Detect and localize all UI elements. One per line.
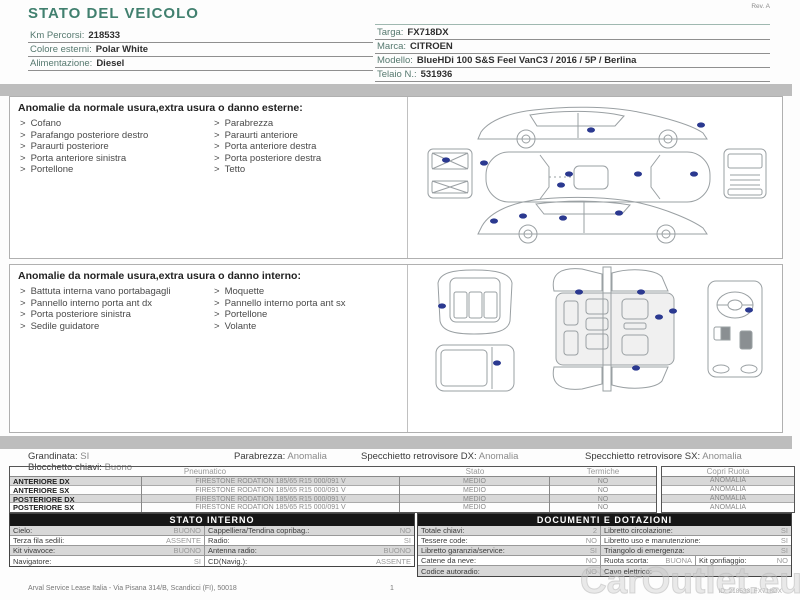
status-label: Specchietto retrovisore DX:: [361, 451, 477, 462]
kv-cell: Cappelliera/Tendina copribag.:NO: [205, 526, 414, 535]
kv-value: SI: [781, 526, 788, 535]
table-row: ANTERIORE SX FIRESTONE RODATION 185/65 R…: [10, 486, 656, 495]
field-value: FX718DX: [407, 27, 448, 38]
list-bullet: >: [20, 130, 26, 142]
list-bullet: >: [214, 321, 220, 333]
table-title: STATO INTERNO: [10, 514, 414, 526]
list-item: >Pannello interno porta ant dx: [18, 298, 208, 310]
tyre-table-header: Pneumatico Stato Termiche: [10, 467, 656, 477]
anomaly-label: Cofano: [31, 118, 62, 130]
revision-label: Rev. A: [751, 3, 770, 10]
table-row: ANOMALIA: [662, 486, 794, 495]
kv-value: ASSENTE: [376, 557, 411, 566]
kv-cell: Tessere code:NO: [418, 536, 601, 545]
kv-label: Navigatore:: [13, 557, 51, 566]
car-front-view: [724, 149, 766, 198]
footer-page-number: 1: [390, 585, 394, 592]
anomaly-label: Porta anteriore sinistra: [31, 153, 127, 165]
field-modello: Modello: BlueHDi 100 S&S Feel VanC3 / 20…: [375, 54, 770, 68]
interior-anomalies-section: Anomalie da normale usura,extra usura o …: [9, 264, 783, 433]
tyre-position: POSTERIORE DX: [10, 495, 142, 504]
list-item: >Pannello interno porta ant sx: [212, 298, 399, 310]
anomaly-label: Paraurti posteriore: [31, 141, 109, 153]
anomaly-label: Parafango posteriore destro: [31, 130, 149, 142]
kv-label: Antenna radio:: [208, 546, 257, 555]
exterior-col2: >Parabrezza >Paraurti anteriore >Porta a…: [212, 118, 399, 176]
list-bullet: >: [20, 286, 26, 298]
tyre-description: FIRESTONE RODATION 185/65 R15 000/091 V: [142, 486, 400, 495]
kv-label: Triangolo di emergenza:: [604, 546, 685, 555]
tyre-description: FIRESTONE RODATION 185/65 R15 000/091 V: [142, 477, 400, 486]
kv-label: Catene da neve:: [421, 556, 476, 565]
damage-marker: [690, 171, 698, 176]
hatch-interior-view: [436, 345, 514, 391]
field-value: 531936: [421, 69, 453, 80]
interior-anomalies-list: Anomalie da normale usura,extra usura o …: [10, 265, 408, 432]
tyre-termiche: NO: [550, 477, 656, 486]
table-row: Libretto garanzia/service:SI Triangolo d…: [418, 546, 791, 556]
field-value: Polar White: [96, 44, 148, 55]
anomaly-label: Moquette: [225, 286, 265, 298]
kv-label: Libretto circolazione:: [604, 526, 673, 535]
list-bullet: >: [214, 298, 220, 310]
list-bullet: >: [214, 118, 220, 130]
field-value: 218533: [88, 30, 120, 41]
vehicle-report-page: STATO DEL VEICOLO Rev. A Km Percorsi: 21…: [0, 0, 800, 600]
kv-cell: Terza fila sedili:ASSENTE: [10, 536, 205, 545]
field-telaio: Telaio N.: 531936: [375, 68, 770, 82]
page-title: STATO DEL VEICOLO: [28, 5, 199, 22]
kv-label: Totale chiavi:: [421, 526, 464, 535]
list-bullet: >: [214, 286, 220, 298]
kv-cell: Libretto circolazione:SI: [601, 526, 791, 535]
exterior-col1: >Cofano >Parafango posteriore destro >Pa…: [18, 118, 208, 176]
tyre-stato: MEDIO: [400, 477, 550, 486]
list-item: >Parabrezza: [212, 118, 399, 130]
kv-value: BUONO: [173, 526, 201, 535]
kv-cell: Kit vivavoce:BUONO: [10, 546, 205, 555]
list-item: >Porta anteriore sinistra: [18, 153, 208, 165]
anomaly-label: Portellone: [225, 309, 268, 321]
car-interior-views-diagram: [408, 265, 782, 416]
tyre-termiche: NO: [550, 486, 656, 495]
table-row: ANOMALIA: [662, 503, 794, 512]
kv-value: 2: [593, 526, 597, 535]
list-bullet: >: [20, 153, 26, 165]
anomaly-label: Portellone: [31, 164, 74, 176]
anomaly-label: Tetto: [225, 164, 246, 176]
column-header: Termiche: [550, 467, 656, 476]
tyre-position: POSTERIORE SX: [10, 503, 142, 512]
damage-marker: [637, 289, 645, 294]
dashboard-view: [708, 281, 762, 377]
list-item: >Porta posteriore sinistra: [18, 309, 208, 321]
list-item: >Paraurti posteriore: [18, 141, 208, 153]
list-item: >Paraurti anteriore: [212, 130, 399, 142]
interior-damage-diagram: [408, 265, 782, 432]
table-row: Tessere code:NO Libretto uso e manutenzi…: [418, 536, 791, 546]
damage-marker: [745, 307, 753, 312]
separator-bar: [0, 436, 792, 449]
footer-company-address: Arval Service Lease Italia - Via Pisana …: [28, 585, 237, 592]
list-item: >Battuta interna vano portabagagli: [18, 286, 208, 298]
car-top-view: [486, 152, 710, 202]
kv-label: Libretto garanzia/service:: [421, 546, 505, 555]
anomaly-label: Pannello interno porta ant sx: [225, 298, 346, 310]
anomaly-label: Porta anteriore destra: [225, 141, 317, 153]
list-item: >Portellone: [212, 309, 399, 321]
kv-label: Codice autoradio:: [421, 567, 480, 576]
anomaly-label: Volante: [225, 321, 257, 333]
list-item: >Porta posteriore destra: [212, 153, 399, 165]
field-label: Telaio N.:: [377, 69, 417, 80]
field-label: Modello:: [377, 55, 413, 66]
list-bullet: >: [20, 118, 26, 130]
damage-marker: [669, 308, 677, 313]
kv-value: SI: [590, 546, 597, 555]
tyre-position: ANTERIORE DX: [10, 477, 142, 486]
separator-bar: [0, 84, 792, 96]
tyre-stato: MEDIO: [400, 495, 550, 504]
interior-anomalies-columns: >Battuta interna vano portabagagli >Pann…: [18, 286, 399, 332]
table-row: Kit vivavoce:BUONO Antenna radio:BUONO: [10, 546, 414, 556]
anomaly-label: Porta posteriore sinistra: [31, 309, 131, 321]
anomaly-label: Porta posteriore destra: [225, 153, 322, 165]
status-value: SI: [80, 451, 89, 462]
car-exterior-views-diagram: [408, 97, 782, 258]
field-targa: Targa: FX718DX: [375, 26, 770, 40]
car-rear-view: [428, 149, 472, 198]
list-bullet: >: [20, 309, 26, 321]
kv-label: Kit vivavoce:: [13, 546, 55, 555]
exterior-anomalies-columns: >Cofano >Parafango posteriore destro >Pa…: [18, 118, 399, 176]
exterior-damage-diagram: [408, 97, 782, 258]
car-side-view-right: [478, 197, 707, 243]
field-value: Diesel: [96, 58, 124, 69]
field-value: CITROEN: [410, 41, 453, 52]
status-label: Grandinata:: [28, 451, 78, 462]
tyre-table: Pneumatico Stato Termiche ANTERIORE DX F…: [9, 466, 657, 513]
damage-marker: [565, 171, 573, 176]
kv-value: NO: [400, 526, 411, 535]
list-item: >Sedile guidatore: [18, 321, 208, 333]
stato-interno-table: STATO INTERNO Cielo:BUONO Cappelliera/Te…: [9, 513, 415, 567]
anomaly-label: Battuta interna vano portabagagli: [31, 286, 171, 298]
anomaly-label: Sedile guidatore: [31, 321, 100, 333]
status-label: Parabrezza:: [234, 451, 285, 462]
kv-cell: Antenna radio:BUONO: [205, 546, 414, 555]
kv-label: Cielo:: [13, 526, 32, 535]
table-row: ANOMALIA: [662, 495, 794, 504]
table-row: Totale chiavi:2 Libretto circolazione:SI: [418, 526, 791, 536]
kv-label: Cappelliera/Tendina copribag.:: [208, 526, 309, 535]
field-colore: Colore esterni: Polar White: [28, 43, 373, 57]
damage-marker: [587, 127, 595, 132]
kv-cell: Cielo:BUONO: [10, 526, 205, 535]
status-specchietto-dx: Specchietto retrovisore DX: Anomalia: [361, 451, 518, 462]
damage-marker: [519, 213, 527, 218]
list-bullet: >: [214, 141, 220, 153]
exterior-anomalies-title: Anomalie da normale usura,extra usura o …: [18, 102, 399, 114]
status-specchietto-sx: Specchietto retrovisore SX: Anomalia: [585, 451, 742, 462]
kv-label: Terza fila sedili:: [13, 536, 64, 545]
tyre-stato: MEDIO: [400, 503, 550, 512]
kv-value: BUONO: [383, 546, 411, 555]
field-label: Colore esterni:: [30, 44, 92, 55]
kv-value: SI: [781, 536, 788, 545]
list-item: >Moquette: [212, 286, 399, 298]
exterior-anomalies-list: Anomalie da normale usura,extra usura o …: [10, 97, 408, 258]
kv-cell: Totale chiavi:2: [418, 526, 601, 535]
list-item: >Portellone: [18, 164, 208, 176]
kv-cell: Catene da neve:NO: [418, 556, 601, 565]
list-item: >Parafango posteriore destro: [18, 130, 208, 142]
status-label: Specchietto retrovisore SX:: [585, 451, 700, 462]
column-header: Stato: [400, 467, 550, 476]
anomaly-label: Paraurti anteriore: [225, 130, 298, 142]
kv-value: SI: [781, 546, 788, 555]
exterior-anomalies-section: Anomalie da normale usura,extra usura o …: [9, 96, 783, 259]
table-row: POSTERIORE SX FIRESTONE RODATION 185/65 …: [10, 503, 656, 512]
kv-label: CD(Navig.):: [208, 557, 247, 566]
damage-marker: [490, 218, 498, 223]
caroutlet-watermark: CarOutlet.eu: [580, 560, 800, 600]
kv-cell: Libretto uso e manutenzione:SI: [601, 536, 791, 545]
field-label: Alimentazione:: [30, 58, 92, 69]
field-label: Targa:: [377, 27, 403, 38]
status-parabrezza: Parabrezza: Anomalia: [234, 451, 327, 462]
kv-cell: Radio:SI: [205, 536, 414, 545]
interior-col2: >Moquette >Pannello interno porta ant sx…: [212, 286, 399, 332]
damage-marker: [442, 157, 450, 162]
kv-cell: Triangolo di emergenza:SI: [601, 546, 791, 555]
damage-marker: [559, 215, 567, 220]
interior-anomalies-title: Anomalie da normale usura,extra usura o …: [18, 270, 399, 282]
table-row: ANTERIORE DX FIRESTONE RODATION 185/65 R…: [10, 477, 656, 486]
damage-marker: [655, 314, 663, 319]
list-bullet: >: [20, 141, 26, 153]
interior-col1: >Battuta interna vano portabagagli >Pann…: [18, 286, 208, 332]
damage-marker: [634, 171, 642, 176]
field-km: Km Percorsi: 218533: [28, 29, 373, 43]
kv-cell: Navigatore:SI: [10, 556, 205, 566]
table-row: Navigatore:SI CD(Navig.):ASSENTE: [10, 556, 414, 566]
list-bullet: >: [214, 309, 220, 321]
tyre-position: ANTERIORE SX: [10, 486, 142, 495]
table-row: Terza fila sedili:ASSENTE Radio:SI: [10, 536, 414, 546]
kv-label: Tessere code:: [421, 536, 468, 545]
table-row: Cielo:BUONO Cappelliera/Tendina copribag…: [10, 526, 414, 536]
list-item: >Tetto: [212, 164, 399, 176]
status-grandinata: Grandinata: SI: [28, 451, 89, 462]
field-marca: Marca: CITROEN: [375, 40, 770, 54]
kv-cell: Libretto garanzia/service:SI: [418, 546, 601, 555]
tyre-description: FIRESTONE RODATION 185/65 R15 000/091 V: [142, 503, 400, 512]
column-header: Copri Ruota: [662, 467, 794, 477]
kv-value: NO: [586, 536, 597, 545]
field-alimentazione: Alimentazione: Diesel: [28, 57, 373, 71]
status-value: Anomalia: [479, 451, 519, 462]
header-left-fields: Km Percorsi: 218533 Colore esterni: Pola…: [28, 29, 373, 71]
damage-marker: [438, 303, 446, 308]
table-row: ANOMALIA: [662, 477, 794, 486]
copri-ruota-table: Copri Ruota ANOMALIA ANOMALIA ANOMALIA A…: [661, 466, 795, 513]
kv-cell: CD(Navig.):ASSENTE: [205, 556, 414, 566]
kv-cell: Codice autoradio:NO: [418, 566, 601, 576]
damage-marker: [615, 210, 623, 215]
list-bullet: >: [214, 164, 220, 176]
table-title: DOCUMENTI E DOTAZIONI: [418, 514, 791, 526]
list-item: >Porta anteriore destra: [212, 141, 399, 153]
damage-marker: [697, 122, 705, 127]
column-header: Pneumatico: [10, 467, 400, 476]
kv-label: Radio:: [208, 536, 230, 545]
kv-value: ASSENTE: [166, 536, 201, 545]
kv-value: SI: [404, 536, 411, 545]
list-bullet: >: [20, 321, 26, 333]
anomaly-label: Parabrezza: [225, 118, 274, 130]
field-label: Marca:: [377, 41, 406, 52]
list-item: >Cofano: [18, 118, 208, 130]
tyre-stato: MEDIO: [400, 486, 550, 495]
damage-marker: [632, 365, 640, 370]
tyre-description: FIRESTONE RODATION 185/65 R15 000/091 V: [142, 495, 400, 504]
tyre-termiche: NO: [550, 495, 656, 504]
tyre-termiche: NO: [550, 503, 656, 512]
kv-value: BUONO: [173, 546, 201, 555]
cabin-spread-view: [553, 267, 674, 391]
list-item: >Volante: [212, 321, 399, 333]
field-value: BlueHDi 100 S&S Feel VanC3 / 2016 / 5P /…: [417, 55, 636, 66]
list-bullet: >: [214, 130, 220, 142]
kv-value: SI: [194, 557, 201, 566]
damage-marker: [575, 289, 583, 294]
status-value: Anomalia: [702, 451, 742, 462]
anomaly-label: Pannello interno porta ant dx: [31, 298, 152, 310]
trunk-interior-view: [438, 270, 512, 334]
list-bullet: >: [20, 298, 26, 310]
damage-marker: [480, 160, 488, 165]
status-value: Anomalia: [287, 451, 327, 462]
damage-marker: [493, 360, 501, 365]
list-bullet: >: [20, 164, 26, 176]
field-label: Km Percorsi:: [30, 30, 84, 41]
kv-label: Libretto uso e manutenzione:: [604, 536, 701, 545]
damage-marker: [557, 182, 565, 187]
table-row: POSTERIORE DX FIRESTONE RODATION 185/65 …: [10, 495, 656, 504]
list-bullet: >: [214, 153, 220, 165]
